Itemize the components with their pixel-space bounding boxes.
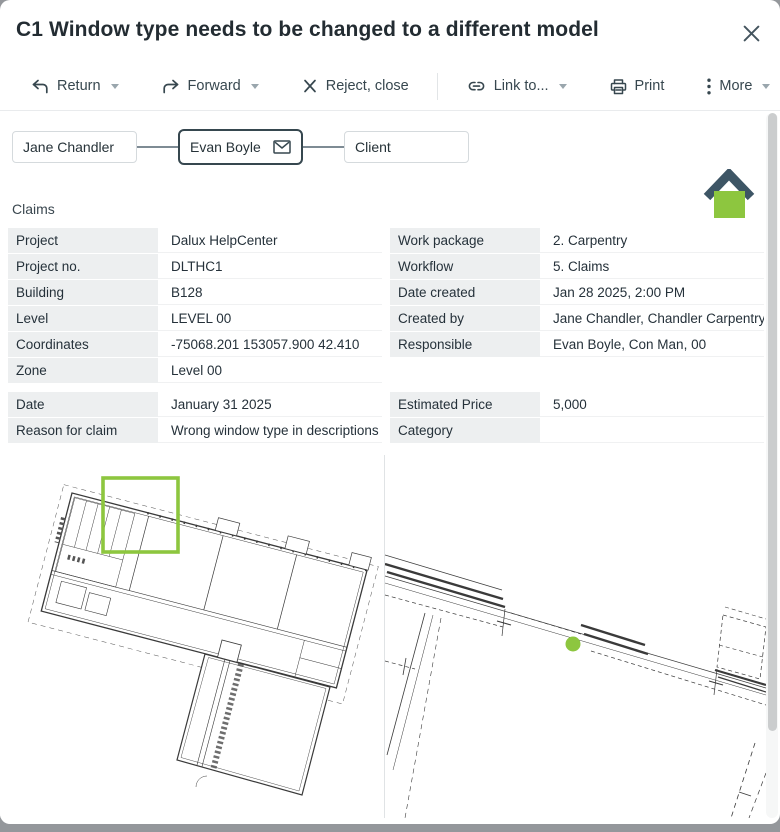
- field-label: Category: [390, 418, 540, 443]
- field-value: 2. Carpentry: [540, 228, 764, 253]
- field-value: Level 00: [158, 358, 382, 383]
- chevron-down-icon: [559, 84, 567, 89]
- chevron-down-icon: [251, 84, 259, 89]
- field-label: Work package: [390, 228, 540, 253]
- close-button[interactable]: [740, 22, 762, 44]
- floorplan-detail[interactable]: [385, 455, 766, 818]
- field-value: Jane Chandler, Chandler Carpentry: [540, 306, 764, 331]
- workflow-steps: Jane Chandler Evan Boyle Client: [12, 129, 469, 165]
- table-row: DateJanuary 31 2025: [8, 392, 382, 417]
- x-icon: [301, 77, 319, 95]
- reject-close-button[interactable]: Reject, close: [301, 77, 409, 95]
- table-row: Category: [390, 418, 764, 443]
- details-right-column: Work package2. Carpentry Workflow5. Clai…: [390, 228, 764, 358]
- return-button[interactable]: Return: [30, 77, 119, 95]
- toolbar-divider: [437, 73, 438, 100]
- field-value: Dalux HelpCenter: [158, 228, 382, 253]
- workflow-connector: [303, 146, 344, 148]
- field-label: Zone: [8, 358, 158, 383]
- reject-close-label: Reject, close: [326, 78, 409, 94]
- claim-right-column: Estimated Price5,000 Category: [390, 392, 764, 444]
- table-row: Work package2. Carpentry: [390, 228, 764, 253]
- section-label: Claims: [12, 201, 55, 217]
- print-icon: [609, 77, 628, 96]
- page-title: C1 Window type needs to be changed to a …: [16, 18, 716, 42]
- table-row: Reason for claimWrong window type in des…: [8, 418, 382, 443]
- table-row: Date createdJan 28 2025, 2:00 PM: [390, 280, 764, 305]
- field-label: Building: [8, 280, 158, 305]
- field-label: Project: [8, 228, 158, 253]
- link-to-label: Link to...: [494, 78, 549, 94]
- field-value: LEVEL 00: [158, 306, 382, 331]
- vertical-scrollbar-thumb[interactable]: [768, 113, 777, 731]
- link-to-button[interactable]: Link to...: [466, 77, 567, 95]
- field-label: Coordinates: [8, 332, 158, 357]
- more-label: More: [719, 78, 752, 94]
- bottom-edge-bar: [0, 824, 780, 832]
- table-row: ZoneLevel 00: [8, 358, 382, 383]
- field-value: DLTHC1: [158, 254, 382, 279]
- workflow-step-evan-boyle-active[interactable]: Evan Boyle: [178, 129, 303, 165]
- link-icon: [466, 77, 487, 95]
- field-label: Date: [8, 392, 158, 417]
- close-icon: [743, 25, 760, 42]
- table-row: LevelLEVEL 00: [8, 306, 382, 331]
- field-value: 5,000: [540, 392, 764, 417]
- chevron-down-icon: [111, 84, 119, 89]
- workflow-step-label: Jane Chandler: [23, 139, 114, 155]
- workflow-step-client[interactable]: Client: [344, 131, 469, 163]
- forward-arrow-icon: [161, 77, 181, 95]
- kebab-menu-icon: [706, 77, 712, 96]
- envelope-icon: [273, 140, 291, 154]
- vertical-scrollbar-track[interactable]: [766, 113, 778, 818]
- table-row: Workflow5. Claims: [390, 254, 764, 279]
- claim-fields-tables: DateJanuary 31 2025 Reason for claimWron…: [8, 392, 764, 444]
- table-row: BuildingB128: [8, 280, 382, 305]
- chevron-down-icon: [762, 84, 770, 89]
- workflow-step-label: Client: [355, 139, 391, 155]
- table-row: Created byJane Chandler, Chandler Carpen…: [390, 306, 764, 331]
- toolbar: Return Forward Reject, close: [0, 62, 780, 111]
- field-value: B128: [158, 280, 382, 305]
- issue-location-marker: [566, 637, 581, 652]
- return-arrow-icon: [30, 77, 50, 95]
- table-row: Estimated Price5,000: [390, 392, 764, 417]
- return-label: Return: [57, 78, 101, 94]
- field-value: January 31 2025: [158, 392, 382, 417]
- field-label: Reason for claim: [8, 418, 158, 443]
- table-row: Coordinates-75068.201 153057.900 42.410: [8, 332, 382, 357]
- claim-dialog: C1 Window type needs to be changed to a …: [0, 0, 780, 824]
- floorplan-viewers: [0, 455, 766, 818]
- field-value: 5. Claims: [540, 254, 764, 279]
- floorplan-overview[interactable]: [0, 455, 384, 818]
- field-label: Created by: [390, 306, 540, 331]
- field-label: Date created: [390, 280, 540, 305]
- claim-left-column: DateJanuary 31 2025 Reason for claimWron…: [8, 392, 382, 444]
- field-label: Project no.: [8, 254, 158, 279]
- field-value: Jan 28 2025, 2:00 PM: [540, 280, 764, 305]
- field-label: Responsible: [390, 332, 540, 357]
- house-location-icon: [703, 169, 755, 219]
- field-label: Workflow: [390, 254, 540, 279]
- forward-label: Forward: [188, 78, 241, 94]
- workflow-connector: [137, 146, 178, 148]
- field-label: Estimated Price: [390, 392, 540, 417]
- field-label: Level: [8, 306, 158, 331]
- field-value: Evan Boyle, Con Man, 00: [540, 332, 764, 357]
- forward-button[interactable]: Forward: [161, 77, 259, 95]
- workflow-step-jane-chandler[interactable]: Jane Chandler: [12, 131, 137, 163]
- details-left-column: ProjectDalux HelpCenter Project no.DLTHC…: [8, 228, 382, 384]
- table-row: Project no.DLTHC1: [8, 254, 382, 279]
- print-label: Print: [635, 78, 665, 94]
- table-row: ProjectDalux HelpCenter: [8, 228, 382, 253]
- table-row: ResponsibleEvan Boyle, Con Man, 00: [390, 332, 764, 357]
- detail-tables: ProjectDalux HelpCenter Project no.DLTHC…: [8, 228, 764, 444]
- more-button[interactable]: More: [706, 77, 770, 96]
- print-button[interactable]: Print: [609, 77, 665, 96]
- field-value: [540, 418, 764, 443]
- field-value: Wrong window type in descriptions: [158, 418, 382, 443]
- workflow-step-label: Evan Boyle: [190, 139, 261, 155]
- field-value: -75068.201 153057.900 42.410: [158, 332, 382, 357]
